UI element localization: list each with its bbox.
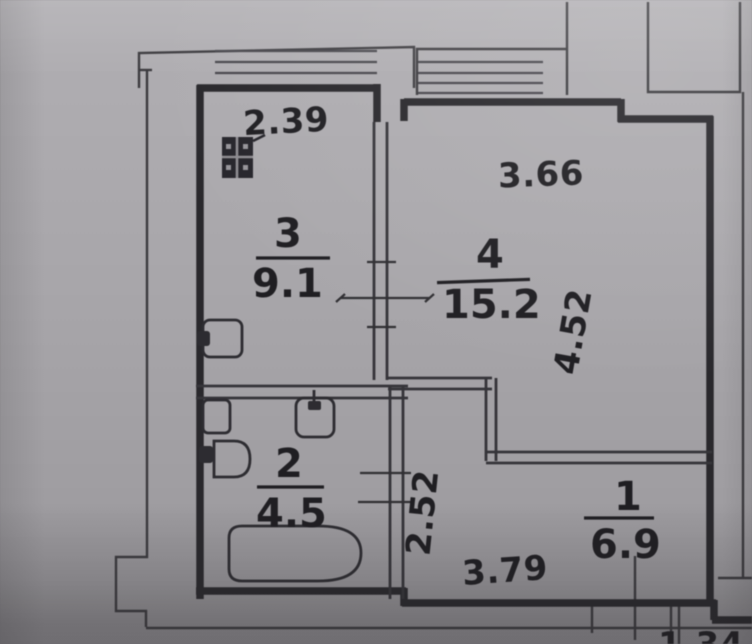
living-area-label: 15.2	[442, 282, 541, 328]
hall-area-label: 6.9	[590, 522, 661, 568]
kitchen-width-label: 2.39	[242, 100, 330, 144]
hall-number-label: 1	[614, 474, 642, 520]
partial-bottom-dimension-label: 1.34	[658, 625, 744, 644]
bath-area-label: 4.5	[256, 491, 327, 537]
hall-width-label: 3.79	[461, 548, 549, 594]
floor-plan-photo: 2.39 3 9.1 3.66 4 15.2 4.52 2 4.5 2.52 3…	[0, 0, 752, 644]
living-width-label: 3.66	[497, 153, 584, 196]
bath-number-label: 2	[275, 441, 303, 487]
kitchen-area-label: 9.1	[252, 261, 323, 307]
living-number-label: 4	[476, 232, 504, 278]
kitchen-number-label: 3	[274, 211, 302, 257]
floor-plan-svg: 2.39 3 9.1 3.66 4 15.2 4.52 2 4.5 2.52 3…	[0, 0, 752, 644]
